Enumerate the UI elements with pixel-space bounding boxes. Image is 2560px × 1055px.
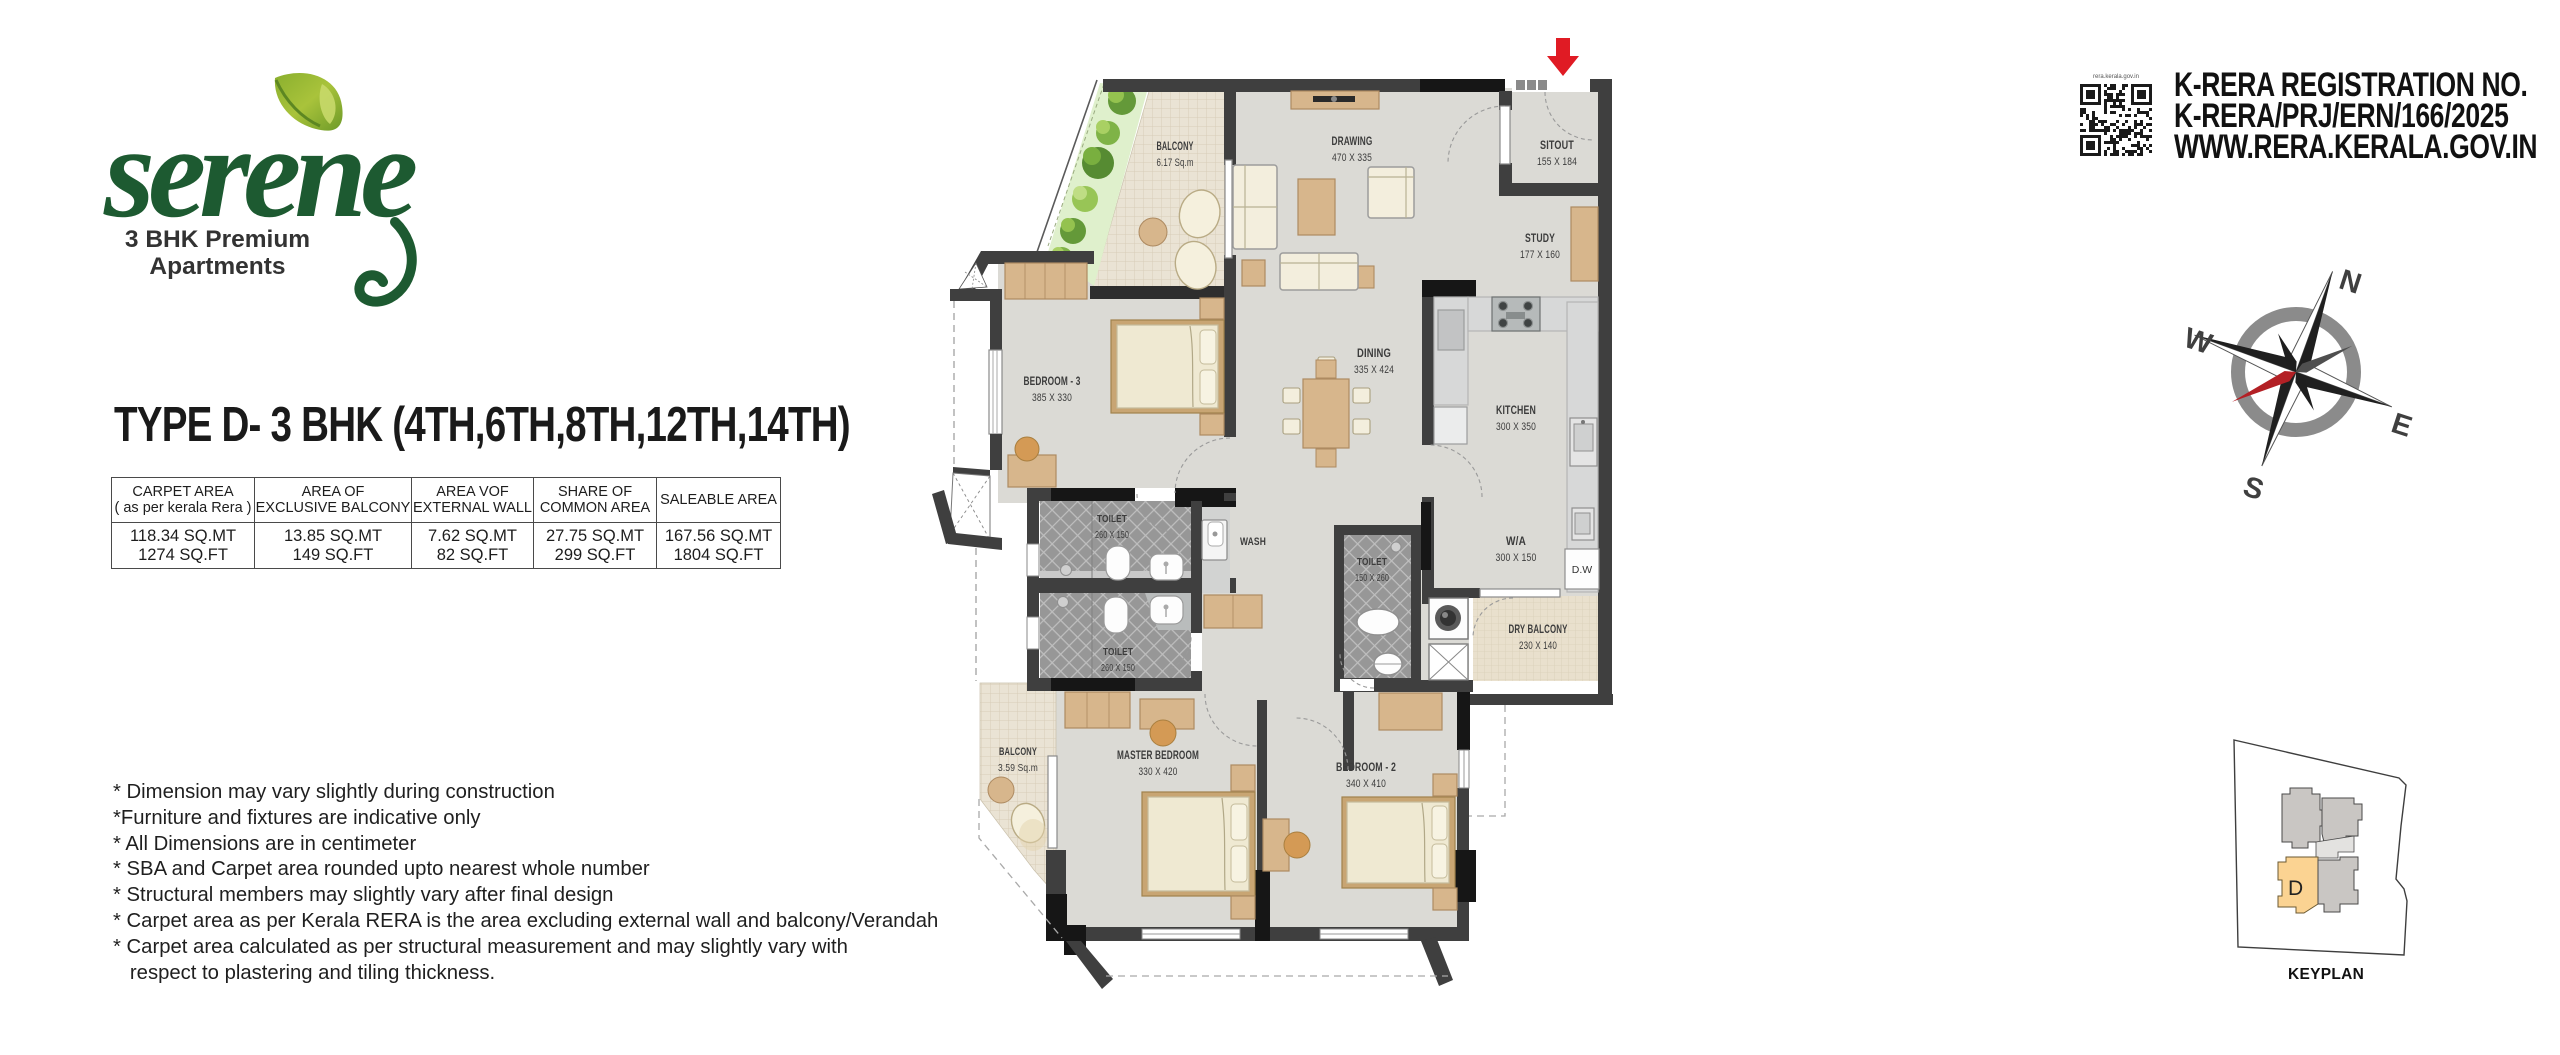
svg-text:150 X 260: 150 X 260 <box>1355 573 1389 584</box>
svg-text:300 X 350: 300 X 350 <box>1496 421 1536 433</box>
svg-text:KITCHEN: KITCHEN <box>1496 403 1536 417</box>
svg-text:260 X 150: 260 X 150 <box>1095 530 1129 541</box>
svg-text:WASH: WASH <box>1240 536 1266 548</box>
svg-text:3.59 Sq.m: 3.59 Sq.m <box>998 762 1038 774</box>
svg-text:TOILET: TOILET <box>1097 513 1127 525</box>
svg-text:470 X 335: 470 X 335 <box>1332 152 1372 164</box>
svg-text:TOILET: TOILET <box>1357 556 1387 568</box>
svg-text:MASTER BEDROOM: MASTER BEDROOM <box>1117 748 1199 762</box>
svg-text:BEDROOM - 3: BEDROOM - 3 <box>1024 374 1081 388</box>
svg-text:W/A: W/A <box>1506 534 1526 548</box>
svg-text:BEDROOM - 2: BEDROOM - 2 <box>1336 760 1396 774</box>
svg-text:DINING: DINING <box>1357 346 1391 360</box>
svg-text:6.17 Sq.m: 6.17 Sq.m <box>1157 157 1194 169</box>
svg-text:177 X 160: 177 X 160 <box>1520 249 1560 261</box>
svg-text:STUDY: STUDY <box>1525 231 1555 245</box>
svg-text:155 X 184: 155 X 184 <box>1537 156 1577 168</box>
svg-text:330 X 420: 330 X 420 <box>1139 766 1178 778</box>
svg-text:BALCONY: BALCONY <box>999 746 1037 758</box>
svg-text:DRAWING: DRAWING <box>1332 134 1373 148</box>
svg-text:BALCONY: BALCONY <box>1157 139 1194 153</box>
svg-text:340 X 410: 340 X 410 <box>1346 778 1386 790</box>
svg-text:DRY BALCONY: DRY BALCONY <box>1509 622 1568 636</box>
svg-text:385 X 330: 385 X 330 <box>1032 392 1072 404</box>
svg-text:TOILET: TOILET <box>1103 646 1133 658</box>
svg-text:335 X 424: 335 X 424 <box>1354 364 1394 376</box>
svg-text:D.W: D.W <box>1572 564 1593 576</box>
svg-text:300 X 150: 300 X 150 <box>1496 552 1537 564</box>
svg-text:260 X 150: 260 X 150 <box>1101 663 1135 674</box>
svg-text:230 X 140: 230 X 140 <box>1519 640 1557 652</box>
svg-text:SITOUT: SITOUT <box>1540 138 1574 152</box>
